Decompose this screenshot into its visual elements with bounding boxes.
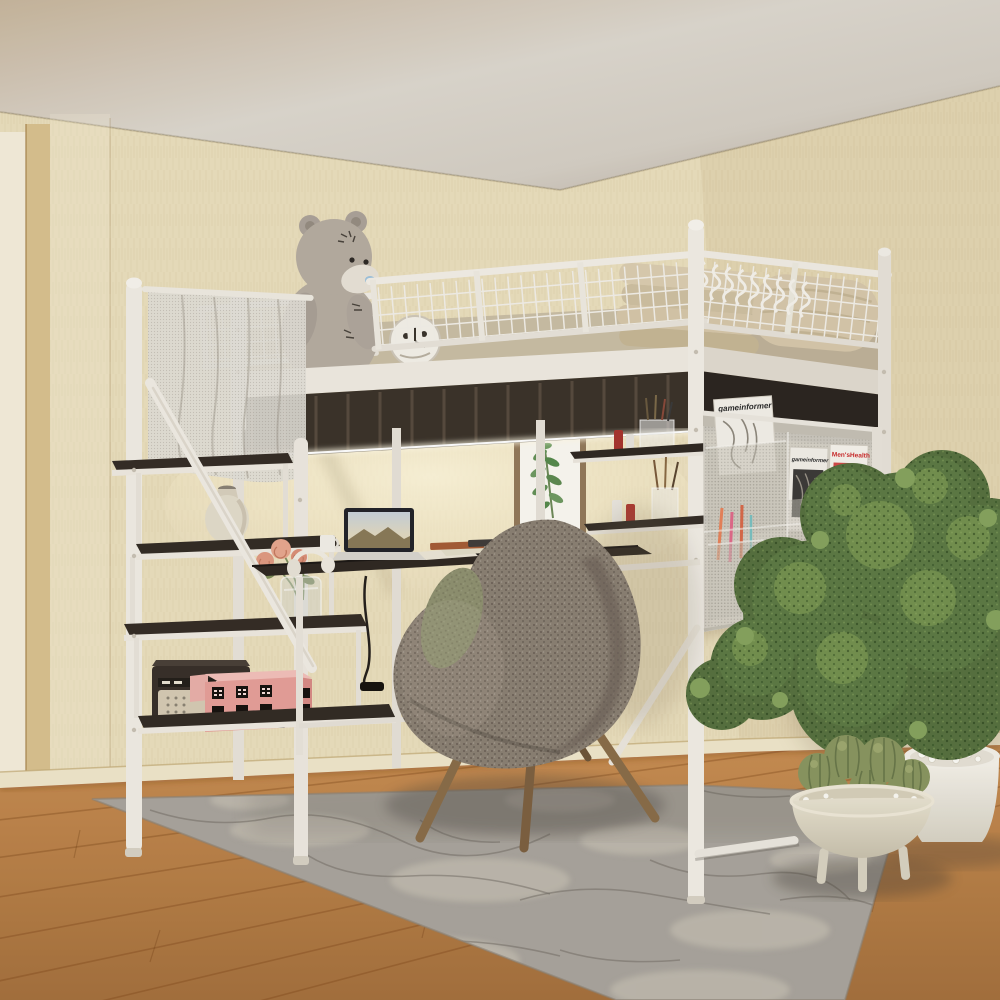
room-photo: gameinformer gameinformer Men'sHealth (0, 0, 1000, 1000)
vignette (0, 0, 1000, 1000)
scene-svg: gameinformer gameinformer Men'sHealth (0, 0, 1000, 1000)
